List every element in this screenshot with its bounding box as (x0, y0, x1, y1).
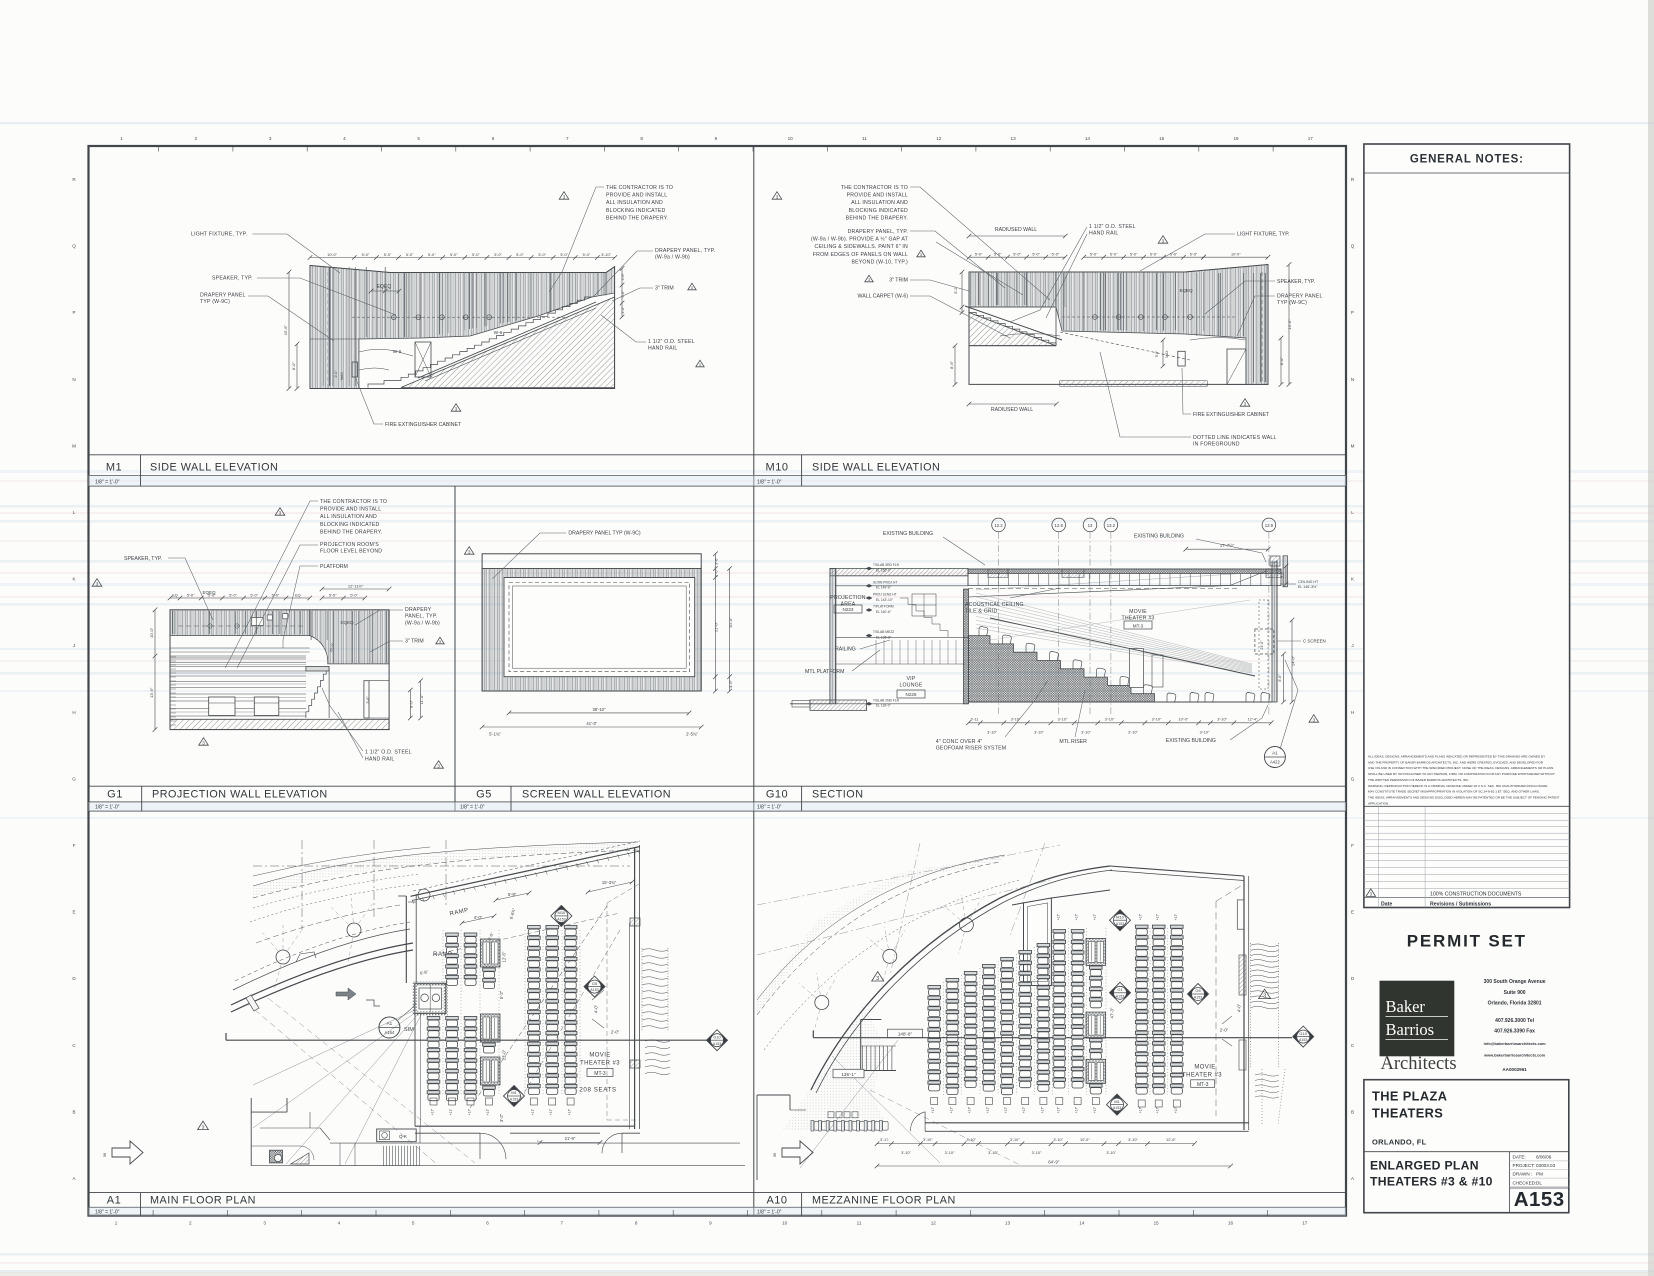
svg-text:A422: A422 (1270, 760, 1280, 765)
svg-text:DRAPERY PANEL: DRAPERY PANEL (1277, 294, 1323, 300)
svg-text:A164: A164 (385, 1030, 395, 1035)
svg-text:T/SLAB 3RD FLR: T/SLAB 3RD FLR (873, 563, 900, 567)
svg-text:3'-6": 3'-6" (366, 696, 370, 704)
svg-text:PROVIDE AND INSTALL: PROVIDE AND INSTALL (320, 507, 381, 513)
svg-text:T/SLAB MEZZ: T/SLAB MEZZ (873, 630, 894, 634)
svg-text:5'-0": 5'-0" (1032, 253, 1040, 257)
svg-text:1/8" = 1'-0": 1/8" = 1'-0" (757, 805, 782, 811)
svg-text:ALL INSULATION AND: ALL INSULATION AND (320, 514, 377, 520)
svg-text:H: H (1351, 710, 1354, 715)
svg-text:5'-0": 5'-0" (1090, 253, 1098, 257)
svg-text:16: 16 (1228, 1221, 1234, 1226)
svg-text:5'-0": 5'-0" (1155, 350, 1159, 357)
svg-text:3'-0": 3'-0" (621, 306, 625, 314)
svg-text:5'-0": 5'-0" (975, 253, 983, 257)
svg-text:5'-0": 5'-0" (516, 253, 524, 257)
svg-text:10'-0": 10'-0" (1231, 253, 1241, 257)
svg-text:PROJECTION WALL ELEVATION: PROJECTION WALL ELEVATION (152, 789, 328, 801)
svg-text:A153: A153 (557, 918, 565, 922)
svg-text:3'-10": 3'-10" (601, 253, 611, 257)
svg-text:+17': +17' (1156, 1106, 1160, 1113)
svg-text:A153: A153 (1194, 996, 1202, 1000)
svg-text:3'-2": 3'-2" (499, 1113, 504, 1122)
svg-text:L: L (1351, 510, 1354, 515)
svg-text:5'-0": 5'-0" (472, 253, 480, 257)
svg-text:5'-0": 5'-0" (1190, 253, 1198, 257)
svg-text:3: 3 (920, 253, 922, 257)
svg-text:10: 10 (788, 136, 794, 141)
svg-text:G10: G10 (766, 789, 788, 801)
svg-text:PROJECTION: PROJECTION (830, 595, 865, 601)
svg-text:SECTION: SECTION (812, 789, 864, 801)
svg-text:FIRE EXTINGUISHER CABINET: FIRE EXTINGUISHER CABINET (385, 422, 462, 428)
svg-text:FLOOR LEVEL BEYOND: FLOOR LEVEL BEYOND (320, 549, 382, 555)
svg-text:A153: A153 (1514, 1188, 1565, 1211)
svg-text:8'-6": 8'-6" (949, 360, 954, 369)
svg-text:PLATFORM: PLATFORM (320, 564, 348, 570)
svg-text:VIP: VIP (907, 676, 916, 682)
svg-text:G5: G5 (476, 789, 492, 801)
svg-text:LOUNGE: LOUNGE (899, 683, 922, 689)
svg-text:A153: A153 (713, 1042, 721, 1046)
svg-text:6: 6 (486, 1221, 489, 1226)
svg-text:5'-0": 5'-0" (1013, 253, 1021, 257)
svg-text:3'-10": 3'-10" (1058, 718, 1068, 722)
svg-text:MTL RISER: MTL RISER (1059, 739, 1087, 745)
svg-text:ALL INSULATION AND: ALL INSULATION AND (606, 200, 663, 206)
svg-text:(W-9a / W-9b). PROVIDE A ½" GA: (W-9a / W-9b). PROVIDE A ½" GAP AT (811, 236, 909, 243)
svg-text:B: B (72, 1109, 75, 1114)
svg-text:3'-1?: 3'-1? (880, 1138, 888, 1142)
svg-text:3'-10": 3'-10" (1200, 731, 1210, 735)
svg-text:W-6: W-6 (393, 349, 402, 355)
svg-text:5'-1¾": 5'-1¾" (489, 732, 501, 737)
svg-text:DRAPERY PANEL: DRAPERY PANEL (200, 293, 246, 299)
svg-text:41'-3": 41'-3" (586, 721, 597, 726)
svg-text:11: 11 (857, 1221, 862, 1226)
svg-text:SPEAKER, TYP.: SPEAKER, TYP. (1277, 279, 1315, 285)
svg-text:CHECKED:: CHECKED: (1513, 1180, 1537, 1185)
svg-text:4: 4 (338, 1221, 341, 1226)
svg-text:5: 5 (412, 1221, 415, 1226)
svg-text:1/8" = 1'-0": 1/8" = 1'-0" (757, 1210, 782, 1216)
svg-text:+17': +17' (1139, 913, 1143, 920)
svg-text:12: 12 (931, 1221, 937, 1226)
svg-text:PANEL, TYP.: PANEL, TYP. (405, 614, 437, 620)
svg-text:3" TRIM: 3" TRIM (405, 639, 424, 645)
svg-text:GENERAL NOTES:: GENERAL NOTES: (1410, 154, 1524, 166)
svg-text:G1: G1 (1117, 987, 1123, 992)
svg-text:PROVIDE AND INSTALL: PROVIDE AND INSTALL (606, 193, 667, 199)
svg-text:DL: DL (1536, 1180, 1542, 1185)
svg-text:9: 9 (715, 136, 718, 141)
svg-text:MT-3: MT-3 (1133, 623, 1144, 628)
svg-text:8'-0": 8'-0" (291, 362, 296, 371)
svg-text:EL 143'-10": EL 143'-10" (876, 598, 894, 602)
svg-text:J: J (73, 643, 75, 648)
svg-text:EQ: EQ (295, 594, 301, 598)
svg-text:2: 2 (189, 1221, 192, 1226)
svg-text:13: 13 (1011, 136, 1017, 141)
svg-text:5'-0": 5'-0" (1110, 253, 1118, 257)
svg-text:G: G (72, 776, 76, 781)
svg-text:2: 2 (195, 136, 198, 141)
svg-text:A153: A153 (1116, 922, 1124, 926)
svg-text:5'-0": 5'-0" (272, 594, 280, 598)
svg-text:EL 118'-0": EL 118'-0" (876, 704, 892, 708)
svg-text:A1: A1 (387, 1021, 393, 1026)
svg-text:3" TRIM: 3" TRIM (889, 278, 908, 284)
svg-text:1: 1 (115, 1221, 118, 1226)
svg-text:3" TRIM: 3" TRIM (655, 286, 674, 292)
svg-text:21'-0": 21'-0" (1260, 640, 1264, 650)
svg-text:3'-10": 3'-10" (1152, 718, 1162, 722)
svg-text:T/PLATFORM: T/PLATFORM (873, 605, 894, 609)
svg-text:1: 1 (120, 136, 123, 141)
svg-text:+17': +17' (1040, 1106, 1044, 1113)
svg-text:13: 13 (1088, 523, 1093, 528)
svg-text:THE IDEAS, ARRANGEMENTS AND DE: THE IDEAS, ARRANGEMENTS AND DESIGNS DISC… (1368, 796, 1560, 800)
svg-text:5'-0": 5'-0" (583, 253, 591, 257)
svg-text:(W-9a / W-9b): (W-9a / W-9b) (655, 255, 690, 261)
svg-text:3'-10": 3'-10" (1034, 731, 1044, 735)
svg-text:A10: A10 (766, 1195, 787, 1207)
svg-text:17: 17 (1308, 136, 1314, 141)
svg-text:HAND RAIL: HAND RAIL (648, 346, 677, 352)
svg-text:ALL INSULATION AND: ALL INSULATION AND (851, 200, 908, 206)
svg-text:M: M (72, 443, 76, 448)
svg-text:A153: A153 (1116, 994, 1124, 998)
svg-text:5'-0": 5'-0" (362, 253, 370, 257)
svg-text:12'-4": 12'-4" (1248, 718, 1258, 722)
svg-text:MAY CONSTITUTE TRADE SECRET MI: MAY CONSTITUTE TRADE SECRET MISAPPROPRIA… (1368, 790, 1540, 794)
svg-text:PROJECT:: PROJECT: (1513, 1163, 1535, 1168)
svg-text:10'-0": 10'-0" (1080, 1138, 1090, 1142)
svg-text:300 South Orange Avenue: 300 South Orange Avenue (1484, 979, 1546, 985)
svg-text:4" CONC OVER 4": 4" CONC OVER 4" (936, 739, 983, 745)
svg-text:THEATERS: THEATERS (1372, 1106, 1443, 1121)
svg-text:135'-1": 135'-1" (841, 1072, 856, 1077)
svg-text:TYP (W-9C): TYP (W-9C) (200, 299, 230, 305)
svg-text:11: 11 (862, 136, 867, 141)
svg-text:Baker: Baker (1386, 997, 1426, 1016)
svg-text:THE CONTRACTOR IS TO: THE CONTRACTOR IS TO (320, 499, 387, 505)
svg-text:M1: M1 (106, 462, 122, 474)
svg-text:8'-0": 8'-0" (409, 699, 414, 708)
svg-text:BLOCKING INDICATED: BLOCKING INDICATED (849, 208, 908, 214)
svg-text:G10: G10 (713, 1034, 721, 1039)
svg-text:1/8" = 1'-0": 1/8" = 1'-0" (95, 805, 120, 811)
svg-text:3: 3 (263, 1221, 266, 1226)
svg-text:RAILING: RAILING (835, 647, 856, 653)
svg-text:5'-0": 5'-0" (560, 253, 568, 257)
svg-text:A1: A1 (107, 1195, 121, 1207)
svg-text:MOVIE: MOVIE (1194, 1065, 1215, 1071)
svg-text:1/8" = 1'-0": 1/8" = 1'-0" (757, 479, 782, 485)
svg-text:Q: Q (72, 244, 76, 249)
svg-text:+17': +17' (986, 1106, 990, 1113)
svg-text:BEYOND (W-10, TYP.): BEYOND (W-10, TYP.) (851, 259, 908, 265)
svg-text:12: 12 (936, 136, 942, 141)
svg-text:+17': +17' (931, 1106, 935, 1113)
svg-text:+17': +17' (568, 1108, 572, 1115)
svg-text:4: 4 (343, 136, 346, 141)
svg-text:info@bakerbarriosarchitects.co: info@bakerbarriosarchitects.com (1484, 1041, 1546, 1046)
svg-text:3'-10": 3'-10" (987, 731, 997, 735)
svg-text:9: 9 (709, 1221, 712, 1226)
svg-text:G5: G5 (592, 981, 598, 986)
svg-text:LIGHT FIXTURE, TYP.: LIGHT FIXTURE, TYP. (191, 232, 247, 238)
svg-text:2'-0": 2'-0" (1220, 1028, 1229, 1033)
svg-text:+17': +17' (486, 1108, 490, 1115)
svg-text:5'-0": 5'-0" (494, 253, 502, 257)
svg-text:EXISTING BUILDING: EXISTING BUILDING (883, 531, 933, 537)
svg-text:11'-0": 11'-0" (419, 694, 424, 704)
svg-text:5'-0": 5'-0" (538, 253, 546, 257)
svg-text:N223: N223 (843, 607, 854, 612)
svg-text:36: 36 (102, 1152, 107, 1157)
svg-text:15'-6": 15'-6" (1287, 319, 1292, 330)
svg-text:G: G (1351, 776, 1355, 781)
svg-text:CEILING HT: CEILING HT (1298, 580, 1319, 584)
svg-text:MAX: MAX (1165, 350, 1169, 358)
svg-text:G1: G1 (107, 789, 123, 801)
svg-text:14: 14 (1085, 136, 1091, 141)
svg-text:100% CONSTRUCTION DOCUMENTS: 100% CONSTRUCTION DOCUMENTS (1430, 892, 1522, 898)
svg-text:+17': +17' (468, 1108, 472, 1115)
svg-text:3'-10": 3'-10" (966, 1138, 976, 1142)
svg-text:MAIN FLOOR PLAN: MAIN FLOOR PLAN (150, 1195, 256, 1207)
svg-text:21'-9": 21'-9" (565, 1136, 576, 1141)
svg-text:4'-0": 4'-0" (1236, 1003, 1241, 1012)
svg-text:15'-6": 15'-6" (283, 325, 288, 336)
svg-text:Date: Date (1381, 901, 1392, 907)
svg-text:38'-10": 38'-10" (593, 707, 607, 712)
svg-text:DATE:: DATE: (1513, 1155, 1526, 1160)
svg-text:10'-0": 10'-0" (1179, 718, 1189, 722)
svg-text:8: 8 (640, 136, 643, 141)
svg-text:E: E (72, 910, 75, 915)
svg-text:G10: G10 (1299, 1031, 1307, 1036)
svg-text:SCRN PROJ HT: SCRN PROJ HT (873, 580, 897, 584)
svg-text:+17': +17' (949, 1106, 953, 1113)
svg-text:3'-10": 3'-10" (1032, 1151, 1042, 1155)
svg-text:+17': +17' (1056, 1106, 1060, 1113)
svg-text:+17': +17' (1174, 913, 1178, 920)
svg-text:+17': +17' (1174, 1106, 1178, 1113)
svg-text:M10: M10 (558, 910, 567, 915)
svg-text:7: 7 (566, 136, 569, 141)
svg-text:PERMIT SET: PERMIT SET (1407, 932, 1527, 951)
svg-text:DRAPERY PANEL, TYP.: DRAPERY PANEL, TYP. (848, 229, 908, 235)
svg-text:7': 7' (537, 1139, 541, 1142)
svg-text:W-6: W-6 (494, 330, 503, 336)
svg-text:B: B (1351, 1109, 1354, 1114)
svg-text:Q-K: Q-K (399, 1134, 407, 1139)
svg-text:EL 146'-3½": EL 146'-3½" (1298, 585, 1318, 589)
svg-text:P: P (1351, 310, 1354, 315)
svg-text:J: J (1351, 643, 1353, 648)
svg-text:CEILING & SIDEWALLS. PAINT 6": CEILING & SIDEWALLS. PAINT 6" IN (815, 244, 909, 250)
svg-text:ACOUSTICAL CEILING: ACOUSTICAL CEILING (965, 602, 1024, 608)
svg-text:HAND RAIL: HAND RAIL (1089, 231, 1118, 237)
svg-text:13'-6": 13'-6" (149, 687, 154, 698)
svg-text:SIM: SIM (404, 1027, 414, 1033)
svg-text:IN FOREGROUND: IN FOREGROUND (1193, 442, 1240, 448)
svg-text:PROVIDE AND INSTALL: PROVIDE AND INSTALL (847, 193, 908, 199)
svg-text:MTL PLATFORM: MTL PLATFORM (805, 669, 844, 675)
svg-text:C SCREEN: C SCREEN (1303, 639, 1326, 644)
svg-text:3'-10": 3'-10" (1128, 731, 1138, 735)
svg-text:8'-0": 8'-0" (1279, 357, 1284, 366)
svg-text:Suite 900: Suite 900 (1504, 990, 1526, 996)
svg-text:BEHIND THE DRAPERY.: BEHIND THE DRAPERY. (846, 215, 908, 221)
svg-text:Revisions / Submissions: Revisions / Submissions (1430, 901, 1491, 907)
svg-text:G5: G5 (1195, 988, 1201, 993)
svg-text:L: L (73, 510, 76, 515)
svg-text:5'-0": 5'-0" (384, 253, 392, 257)
svg-text:M10: M10 (1116, 914, 1125, 919)
svg-text:THE CONTRACTOR IS TO: THE CONTRACTOR IS TO (606, 185, 673, 191)
svg-text:EQEQ: EQEQ (202, 590, 216, 595)
svg-text:1 1/2" O.D. STEEL: 1 1/2" O.D. STEEL (648, 339, 695, 345)
svg-text:(W-9a / W-9b): (W-9a / W-9b) (405, 620, 440, 626)
svg-text:LIGHT FIXTURE, TYP.: LIGHT FIXTURE, TYP. (1237, 232, 1289, 238)
svg-text:EQ: EQ (172, 594, 178, 598)
svg-text:P: P (72, 310, 75, 315)
svg-text:+17': +17' (1056, 913, 1060, 920)
svg-text:PM: PM (1536, 1172, 1543, 1177)
svg-text:407.926.3390 Fax: 407.926.3390 Fax (1494, 1029, 1535, 1035)
svg-text:3: 3 (691, 286, 693, 290)
svg-text:ALL IDEAS, DESIGNS, ARRANGEMEN: ALL IDEAS, DESIGNS, ARRANGEMENTS AND PLA… (1368, 755, 1545, 759)
svg-text:A153: A153 (1299, 1038, 1307, 1042)
svg-text:BLOCKING INDICATED: BLOCKING INDICATED (606, 208, 665, 214)
svg-text:5'-0": 5'-0" (406, 253, 414, 257)
svg-text:THEATERS #3 & #10: THEATERS #3 & #10 (1370, 1175, 1493, 1189)
svg-text:3: 3 (269, 136, 272, 141)
svg-text:MT-3: MT-3 (1197, 1082, 1209, 1088)
svg-text:AA0002961: AA0002961 (1502, 1067, 1527, 1072)
svg-text:2'-0": 2'-0" (715, 569, 719, 577)
svg-text:EL 149'-6": EL 149'-6" (876, 586, 892, 590)
svg-text:1/8" = 1'-0": 1/8" = 1'-0" (95, 1210, 120, 1216)
svg-text:5'-0": 5'-0" (1150, 253, 1158, 257)
svg-text:5'-2": 5'-2" (499, 990, 504, 999)
svg-text:www.bakerbarriosarchitects.com: www.bakerbarriosarchitects.com (1483, 1053, 1546, 1058)
svg-text:5'-9": 5'-9" (508, 892, 517, 897)
svg-text:EXISTING BUILDING: EXISTING BUILDING (1134, 534, 1184, 540)
svg-text:SHALL BE USED BY OR DISCLOSED: SHALL BE USED BY OR DISCLOSED TO ANY PER… (1368, 772, 1555, 776)
svg-text:N: N (72, 377, 75, 382)
svg-text:03003.03: 03003.03 (1536, 1163, 1556, 1168)
svg-text:+17': +17' (531, 1108, 535, 1115)
svg-text:T/SLAB 2ND FLR: T/SLAB 2ND FLR (873, 698, 900, 702)
svg-text:WARNING: REPRODUCTION HEREOF I: WARNING: REPRODUCTION HEREOF IS A CRIMIN… (1368, 784, 1547, 788)
svg-text:12'-6": 12'-6" (1166, 1138, 1176, 1142)
svg-text:3: 3 (202, 1125, 205, 1131)
svg-text:+17': +17' (1093, 1106, 1097, 1113)
svg-text:5'-0": 5'-0" (1130, 253, 1138, 257)
svg-text:15: 15 (1154, 1221, 1160, 1226)
svg-text:SPEAKER, TYP.: SPEAKER, TYP. (212, 276, 253, 282)
svg-text:Architects: Architects (1381, 1054, 1457, 1074)
svg-text:+17': +17' (1022, 1106, 1026, 1113)
svg-text:Q: Q (1351, 244, 1355, 249)
svg-text:MEZZANINE FLOOR PLAN: MEZZANINE FLOOR PLAN (812, 1195, 956, 1207)
svg-text:12'-11½": 12'-11½" (348, 584, 364, 589)
svg-text:GEOFOAM RISER SYSTEM: GEOFOAM RISER SYSTEM (936, 746, 1007, 752)
svg-text:6: 6 (492, 136, 495, 141)
svg-text:RADIUSED WALL: RADIUSED WALL (995, 227, 1037, 233)
svg-text:2'-1": 2'-1" (1281, 571, 1285, 578)
svg-text:3: 3 (699, 363, 701, 367)
svg-text:3'-10": 3'-10" (923, 1138, 933, 1142)
svg-text:A153: A153 (510, 1098, 518, 1102)
svg-text:+17': +17' (1093, 913, 1097, 920)
svg-text:BEHIND THE DRAPERY.: BEHIND THE DRAPERY. (320, 529, 382, 535)
svg-text:EXISTING BUILDING: EXISTING BUILDING (1166, 738, 1216, 744)
svg-text:M: M (1351, 443, 1355, 448)
svg-text:+17': +17' (1004, 1106, 1008, 1113)
svg-text:PROJECTION ROOM'S: PROJECTION ROOM'S (320, 542, 379, 548)
svg-text:3'-10": 3'-10" (1053, 1138, 1063, 1142)
svg-text:EQEQ: EQEQ (1179, 288, 1193, 293)
svg-text:SIDE WALL ELEVATION: SIDE WALL ELEVATION (812, 462, 940, 474)
svg-text:10'-0": 10'-0" (327, 253, 337, 257)
svg-text:10: 10 (782, 1221, 788, 1226)
svg-text:A1: A1 (1272, 751, 1278, 756)
svg-text:EL 136'-8": EL 136'-8" (876, 635, 892, 639)
svg-text:DRAPERY: DRAPERY (405, 607, 432, 613)
svg-text:M1: M1 (511, 1090, 517, 1095)
svg-text:16: 16 (1233, 136, 1239, 141)
svg-text:1/8" = 1'-0": 1/8" = 1'-0" (460, 805, 485, 811)
svg-text:EL 156'-0": EL 156'-0" (876, 568, 892, 572)
svg-text:5'-0": 5'-0" (329, 594, 337, 598)
svg-text:8: 8 (635, 1221, 638, 1226)
svg-text:+17': +17' (549, 1108, 553, 1115)
svg-text:TYP (W-9C): TYP (W-9C) (1277, 300, 1307, 306)
svg-text:F: F (1351, 843, 1354, 848)
svg-text:+17': +17' (968, 1106, 972, 1113)
svg-text:3'-10": 3'-10" (1010, 1138, 1020, 1142)
svg-text:5: 5 (417, 136, 420, 141)
svg-text:MAX: MAX (340, 372, 344, 380)
svg-text:SIDE WALL ELEVATION: SIDE WALL ELEVATION (150, 462, 278, 474)
svg-text:1 1/2" O.D. STEEL: 1 1/2" O.D. STEEL (1089, 224, 1136, 230)
svg-text:MOVIE: MOVIE (589, 1053, 610, 1059)
svg-text:MOVIE: MOVIE (1129, 609, 1147, 615)
svg-text:4'-6": 4'-6" (728, 679, 733, 688)
svg-text:3'-10": 3'-10" (945, 1151, 955, 1155)
svg-text:EL 140'-6": EL 140'-6" (876, 610, 892, 614)
svg-text:148'-6": 148'-6" (898, 1032, 913, 1037)
svg-text:12'-5": 12'-5" (502, 951, 507, 962)
svg-text:3'-11: 3'-11 (970, 718, 978, 722)
svg-text:TILE & GRID: TILE & GRID (965, 609, 998, 615)
svg-text:THEATER #3: THEATER #3 (580, 1061, 620, 1067)
svg-text:14: 14 (1079, 1221, 1085, 1226)
svg-text:208 SEATS: 208 SEATS (579, 1087, 616, 1094)
svg-text:SPEAKER, TYP.: SPEAKER, TYP. (124, 556, 162, 562)
svg-text:F: F (73, 843, 76, 848)
svg-text:3: 3 (868, 278, 870, 282)
svg-text:15'-3¾": 15'-3¾" (602, 880, 617, 885)
svg-text:THEATER #3: THEATER #3 (1182, 1073, 1222, 1079)
svg-text:DRAPERY PANEL, TYP.: DRAPERY PANEL, TYP. (655, 248, 715, 254)
svg-text:13.2: 13.2 (1107, 523, 1116, 528)
